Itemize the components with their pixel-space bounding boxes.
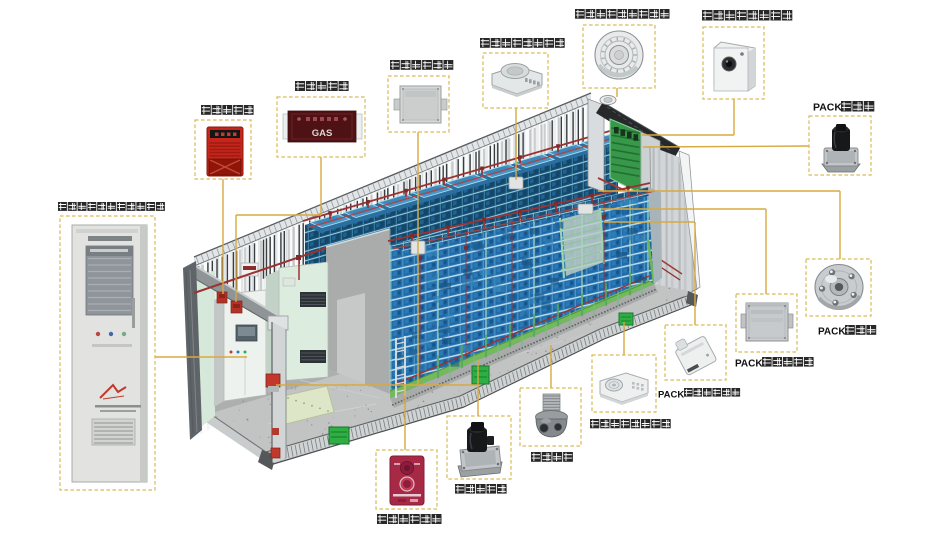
svg-text:PACK: PACK [658, 390, 684, 401]
svg-text:PACK: PACK [818, 327, 846, 338]
svg-text:GAS: GAS [312, 128, 333, 139]
svg-text:PACK: PACK [735, 359, 763, 370]
svg-text:PACK: PACK [813, 102, 842, 114]
